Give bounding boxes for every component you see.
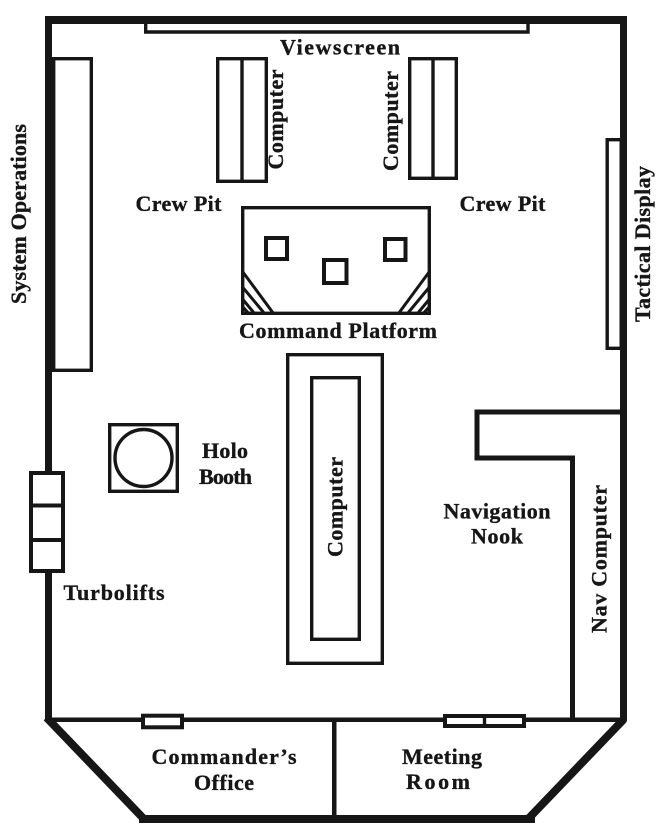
svg-text:Meeting: Meeting <box>402 744 482 769</box>
svg-text:Computer: Computer <box>378 71 403 171</box>
svg-text:Turbolifts: Turbolifts <box>64 580 165 605</box>
svg-text:System Operations: System Operations <box>6 124 31 304</box>
svg-text:Nav Computer: Nav Computer <box>587 485 612 633</box>
svg-text:Crew Pit: Crew Pit <box>460 191 547 216</box>
svg-text:Nook: Nook <box>471 524 524 549</box>
svg-text:Booth: Booth <box>199 464 252 489</box>
svg-text:Viewscreen: Viewscreen <box>280 35 400 60</box>
svg-text:Computer: Computer <box>263 69 288 169</box>
svg-text:Holo: Holo <box>202 438 248 463</box>
svg-text:Room: Room <box>406 769 470 794</box>
svg-text:Tactical Display: Tactical Display <box>630 166 655 322</box>
svg-text:Crew Pit: Crew Pit <box>136 191 223 216</box>
svg-text:Command Platform: Command Platform <box>239 318 437 343</box>
svg-text:Navigation: Navigation <box>444 499 551 524</box>
svg-text:Computer: Computer <box>323 457 348 557</box>
svg-text:Office: Office <box>194 770 254 795</box>
svg-text:Commander’s: Commander’s <box>152 744 297 769</box>
